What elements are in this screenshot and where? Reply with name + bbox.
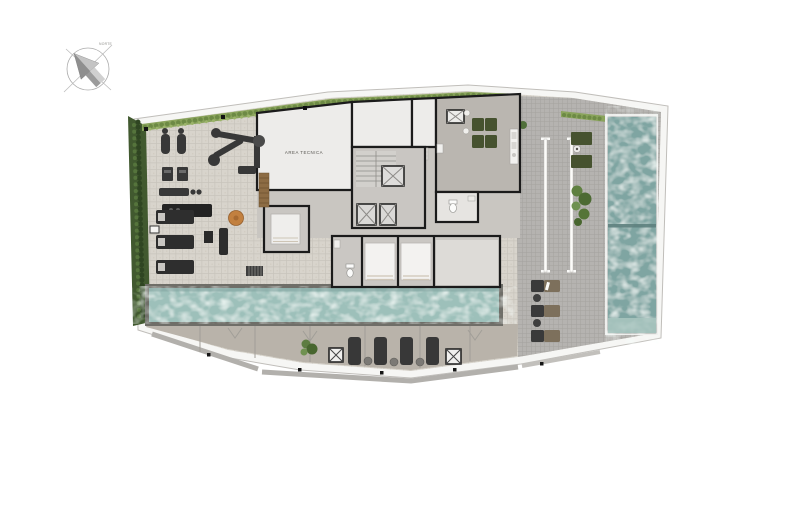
sun-lounger-2 bbox=[374, 337, 387, 365]
wooden-bench bbox=[259, 173, 269, 207]
treadmill-1 bbox=[156, 210, 194, 224]
daybed-4 bbox=[485, 135, 497, 148]
sun-lounger-3 bbox=[400, 337, 413, 365]
lounger-east-1 bbox=[531, 280, 560, 292]
lounger-east-2 bbox=[531, 305, 560, 317]
lounge-terrace bbox=[436, 94, 520, 192]
sauna-1-bed bbox=[365, 243, 395, 280]
bench-dark bbox=[219, 228, 228, 255]
sauna-block bbox=[332, 236, 500, 287]
room-top-right bbox=[412, 98, 436, 147]
wc-sink bbox=[468, 196, 475, 201]
round-table-1 bbox=[464, 110, 470, 116]
bath-toilet-tank bbox=[346, 264, 354, 268]
counter-tap bbox=[512, 153, 516, 157]
dumbbell-1 bbox=[190, 189, 195, 194]
treadmill-3 bbox=[156, 260, 194, 274]
room-top-mid bbox=[352, 99, 412, 147]
relax-room bbox=[436, 240, 498, 285]
compass-label: NORTE bbox=[99, 42, 113, 46]
pool-divider bbox=[608, 224, 656, 228]
weight-machine-1-pad bbox=[164, 170, 171, 173]
lounger-table-3 bbox=[416, 358, 424, 366]
lap-pool-caustics bbox=[149, 288, 499, 322]
lap-pool bbox=[145, 284, 503, 326]
bath-toilet bbox=[347, 269, 353, 277]
garden-seat-2 bbox=[571, 155, 592, 168]
weight-machine-2-pad bbox=[179, 170, 186, 173]
toilet bbox=[450, 204, 457, 213]
round-table-2 bbox=[463, 128, 469, 134]
east-table-2 bbox=[533, 319, 541, 327]
east-table-1 bbox=[533, 294, 541, 302]
weight-machine-2 bbox=[177, 167, 188, 181]
daybed-1 bbox=[472, 118, 484, 131]
lap-pool-shadow bbox=[149, 288, 499, 292]
main-pool bbox=[605, 114, 658, 335]
site-plan: AREA TECNICA bbox=[128, 85, 668, 381]
orange-table-center bbox=[234, 216, 239, 221]
light-fixture-3 bbox=[303, 106, 307, 110]
daybed-3 bbox=[472, 135, 484, 148]
steam-room bbox=[264, 206, 309, 252]
sun-lounger-4 bbox=[426, 337, 439, 365]
weight-bench bbox=[159, 188, 189, 196]
area-tecnica-label: AREA TECNICA bbox=[285, 150, 323, 155]
wall-sink bbox=[437, 144, 443, 153]
dumbbell-2 bbox=[196, 189, 201, 194]
lounger-table-1 bbox=[364, 357, 372, 365]
garden-seat-1 bbox=[571, 132, 592, 145]
equipment-box bbox=[150, 226, 159, 233]
counter-appliance bbox=[512, 142, 517, 149]
light-fixture-2 bbox=[221, 115, 225, 119]
steam-bed bbox=[271, 214, 300, 244]
wc-room bbox=[436, 192, 478, 222]
light-fixture-1 bbox=[144, 127, 148, 131]
weight-machine-1 bbox=[162, 167, 173, 181]
east-loungers bbox=[531, 280, 560, 342]
linear-bench-1 bbox=[544, 139, 547, 272]
circulation-core bbox=[352, 147, 425, 228]
door-mat bbox=[246, 266, 263, 276]
daybed-2 bbox=[485, 118, 497, 131]
bath-sink bbox=[334, 240, 340, 248]
area-tecnica-room bbox=[257, 102, 352, 190]
counter-sink bbox=[512, 132, 517, 139]
pool-steps bbox=[608, 318, 656, 333]
treadmill-2 bbox=[156, 235, 194, 249]
lounger-table-2 bbox=[390, 358, 398, 366]
lounger-east-3 bbox=[531, 330, 560, 342]
sun-lounger-1 bbox=[348, 337, 361, 365]
floor-plan-canvas: NORTE bbox=[0, 0, 800, 514]
sauna-2-bed bbox=[401, 243, 431, 280]
side-table-center bbox=[576, 148, 578, 150]
dumbbell-rack bbox=[204, 231, 213, 243]
compass: NORTE bbox=[64, 42, 113, 92]
